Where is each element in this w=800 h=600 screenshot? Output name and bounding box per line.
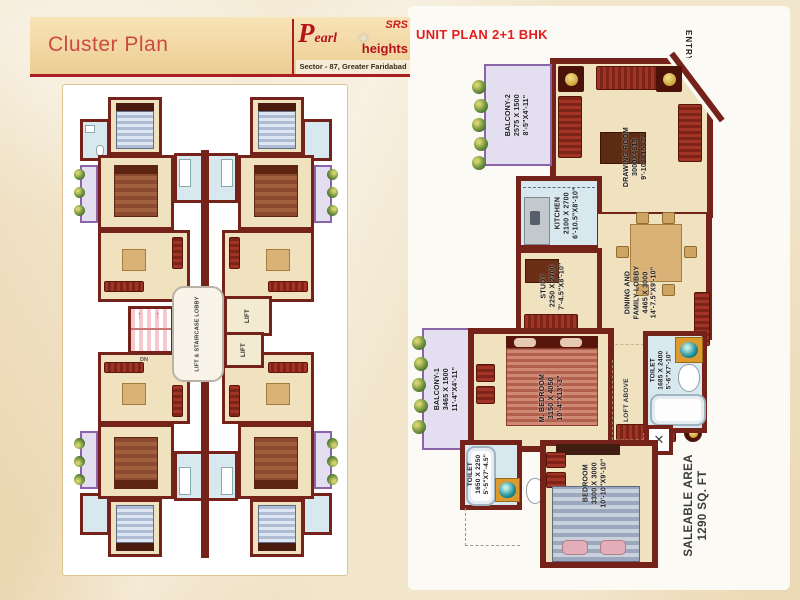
plant-icon [472, 156, 486, 170]
kitchen-label: KITCHEN2100 X 27006'-10.5"X8'-10" [548, 182, 588, 244]
balcony-2-label: BALCONY-22575 X 15008'-5"X4'-11" [486, 70, 550, 160]
header-divider [292, 19, 294, 74]
brand-name-heights: heights [362, 41, 408, 56]
sofa [558, 96, 582, 158]
spine-wall [201, 378, 209, 558]
spine-wall [201, 150, 209, 290]
lift-label: LIFT [245, 309, 251, 323]
header-band: Cluster Plan SRS ❀ Pearl heights Sector … [30, 17, 410, 77]
brand-logo: SRS ❀ Pearl heights Sector - 87, Greater… [296, 17, 410, 74]
page-title: Cluster Plan [48, 33, 168, 57]
lamp-table-icon [656, 66, 682, 92]
chair-icon [476, 386, 495, 404]
toilet-1-label: TOILET1685 X 24005'-6"X7'-10" [648, 340, 676, 400]
staircase: ↑ ↑ [128, 306, 174, 354]
stairs-direction-label: DN [140, 357, 148, 363]
unit-plan-title: UNIT PLAN 2+1 BHK [416, 27, 548, 42]
pearl-rest: earl [315, 31, 338, 46]
pearl-initial: P [298, 18, 315, 48]
chair-icon [684, 246, 697, 258]
chair-icon [636, 212, 649, 224]
saleable-area-label: SALEABLE AREA1290 SQ. FT [672, 430, 720, 580]
brand-subtitle: Sector - 87, Greater Faridabad [296, 60, 410, 74]
dashed-steps [465, 508, 520, 546]
loft-above-label: LOFT ABOVE [612, 360, 641, 440]
pillow-icon [514, 338, 536, 347]
cluster-unit [80, 352, 206, 557]
chair-icon [662, 212, 675, 224]
balcony-1-label: BALCONY-13465 X 150011'-4"X4'-11" [424, 334, 470, 444]
cluster-unit [80, 97, 206, 302]
sink-icon [530, 211, 540, 225]
pillow-icon [600, 540, 626, 555]
lift-1: LIFT [224, 296, 272, 336]
lift-label: LIFT [241, 343, 247, 357]
lift-staircase-lobby: LIFT & STAIRCASE LOBBY [172, 286, 224, 382]
lamp-table-icon [558, 66, 584, 92]
pillow-icon [560, 338, 582, 347]
chair-icon [546, 452, 566, 468]
plant-icon [472, 118, 486, 132]
dining-label: DINING ANDFAMILY LOBBY4465 X 300014'-7.5… [620, 246, 664, 338]
sofa [524, 314, 578, 329]
sofa [678, 104, 702, 162]
wc-icon [678, 364, 700, 392]
brand-name-pearl: Pearl [298, 23, 337, 47]
cluster-unit [206, 352, 332, 557]
bedroom-label: BEDROOM3300 X 300010'-10"X9'-10" [574, 448, 618, 518]
lift-2: LIFT [224, 332, 264, 368]
drawing-room-label: DRAWING ROOM3000X46159'-10"X15'-2" [618, 105, 654, 210]
master-bedroom-label: M. BEDROOM3150 X 405010'-4"X13'-3" [530, 352, 574, 444]
lobby-label: LIFT & STAIRCASE LOBBY [195, 296, 201, 371]
washbasin-icon [675, 337, 703, 363]
pillow-icon [562, 540, 588, 555]
plant-icon [472, 80, 486, 94]
cluster-unit [206, 97, 332, 302]
washbasin-icon [495, 478, 520, 502]
chair-icon [476, 364, 495, 382]
srs-logo: SRS [385, 19, 408, 31]
toilet-2-label: TOILET1650 X 22505'-5"X7'-4.5" [464, 444, 494, 504]
study-label: STUDY2250 X 27007'-4.5"X8'-10" [534, 256, 574, 316]
